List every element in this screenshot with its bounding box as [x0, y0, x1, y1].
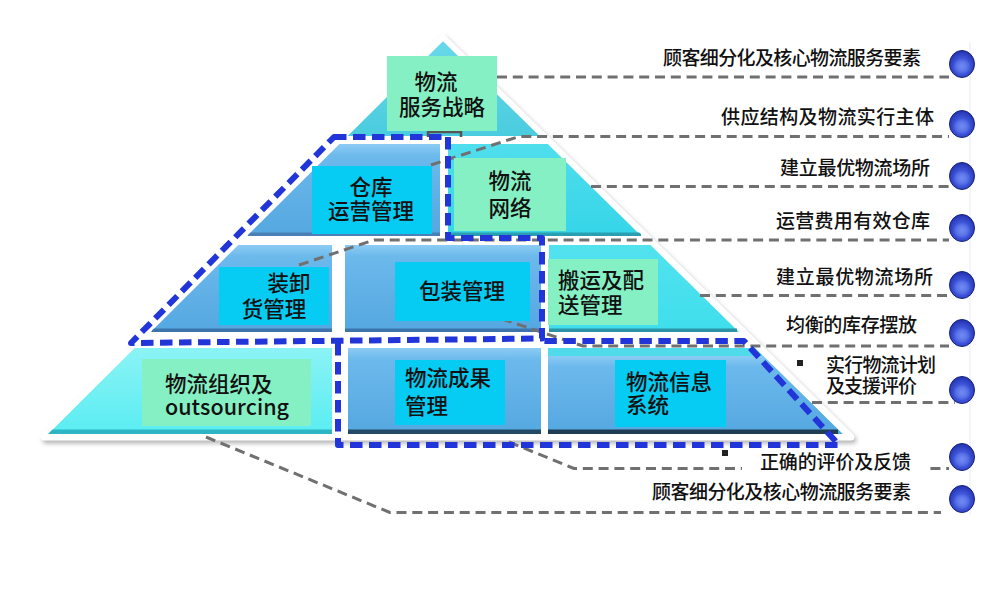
svg-text:送管理: 送管理	[558, 288, 623, 319]
svg-text:建立最优物流场所: 建立最优物流场所	[776, 262, 933, 289]
svg-text:管理: 管理	[405, 389, 448, 420]
svg-text:网络: 网络	[488, 191, 531, 222]
svg-text:运营管理: 运营管理	[328, 194, 414, 225]
svg-text:货管理: 货管理	[242, 292, 307, 323]
svg-text:物流成果: 物流成果	[405, 361, 491, 392]
svg-text:正确的评价及反馈: 正确的评价及反馈	[760, 447, 911, 474]
svg-text:顾客细分化及核心物流服务要素: 顾客细分化及核心物流服务要素	[663, 43, 921, 70]
svg-text:建立最优物流场所: 建立最优物流场所	[780, 153, 930, 180]
svg-text:包装管理: 包装管理	[419, 274, 505, 305]
svg-text:运营费用有效仓库: 运营费用有效仓库	[776, 206, 930, 233]
svg-text:服务战略: 服务战略	[399, 90, 486, 121]
svg-text:outsourcing: outsourcing	[165, 390, 290, 421]
svg-text:顾客细分化及核心物流服务要素: 顾客细分化及核心物流服务要素	[652, 477, 911, 504]
svg-text:及支援评价: 及支援评价	[826, 371, 917, 398]
svg-text:供应结构及物流实行主体: 供应结构及物流实行主体	[721, 102, 934, 129]
svg-text:系统: 系统	[626, 388, 669, 419]
svg-text:均衡的库存摆放: 均衡的库存摆放	[786, 310, 917, 337]
